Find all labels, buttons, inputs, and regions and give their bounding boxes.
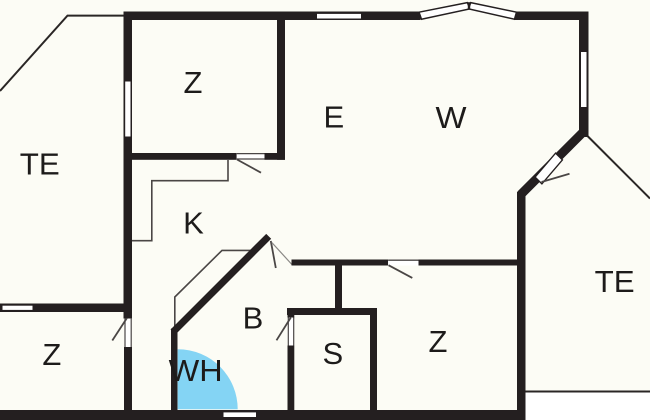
- svg-text:S: S: [322, 336, 343, 371]
- svg-text:B: B: [243, 301, 264, 336]
- svg-text:K: K: [183, 206, 204, 241]
- svg-text:W: W: [436, 100, 468, 135]
- svg-text:Z: Z: [42, 337, 61, 372]
- svg-text:TE: TE: [595, 264, 635, 299]
- svg-text:Z: Z: [184, 65, 203, 100]
- svg-text:WH: WH: [169, 353, 223, 388]
- svg-text:TE: TE: [20, 147, 60, 182]
- svg-text:E: E: [323, 99, 344, 134]
- svg-text:Z: Z: [429, 324, 448, 359]
